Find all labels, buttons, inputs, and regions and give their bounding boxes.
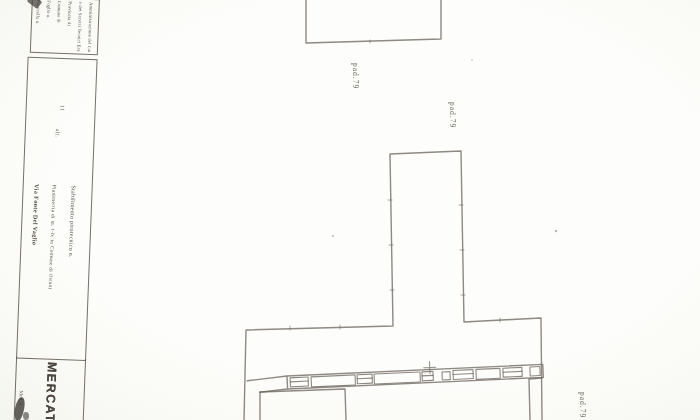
header-line: Amministrazione del Catasto	[83, 2, 95, 52]
altitude-label: alt.	[55, 129, 61, 138]
scan-specks	[332, 59, 557, 237]
header-text-lines: Amministrazione del Catasto e dei Serviz…	[34, 0, 96, 52]
header-line: Foglio n.	[41, 0, 53, 50]
description-line: Stabilimento pirotecnico n.	[64, 185, 77, 359]
stamp-text: MERCATI	[42, 362, 59, 420]
floor-plan-drawing	[0, 0, 700, 420]
altitude-value: 11	[60, 105, 66, 111]
description-line: Via Fonte Del Vaglio	[27, 184, 41, 358]
window-band	[247, 356, 544, 392]
pad-label: pad.79	[351, 63, 360, 89]
header-line: Comune di	[52, 1, 64, 51]
title-block-body: 11 alt. Stabilimento pirotecnico n. Plan…	[16, 57, 98, 361]
title-block-strip: Amministrazione del Catasto e dei Serviz…	[9, 0, 102, 420]
pavilion-top-outline	[306, 0, 441, 43]
title-block-header: Amministrazione del Catasto e dei Serviz…	[30, 0, 100, 55]
title-block-stamp: MERCATI Mod. 4	[13, 356, 86, 420]
description-line: Planimetria di m. 1-b; in Comune di Ostu…	[45, 185, 58, 359]
scan-smudge	[23, 412, 29, 420]
pad-label: pad.79	[448, 102, 457, 128]
pad-label: pad.79	[578, 392, 587, 418]
scanned-plan-sheet: pad.79 pad.79 pad.79 Amministrazione del…	[0, 0, 700, 420]
wall-ticks	[290, 40, 500, 330]
